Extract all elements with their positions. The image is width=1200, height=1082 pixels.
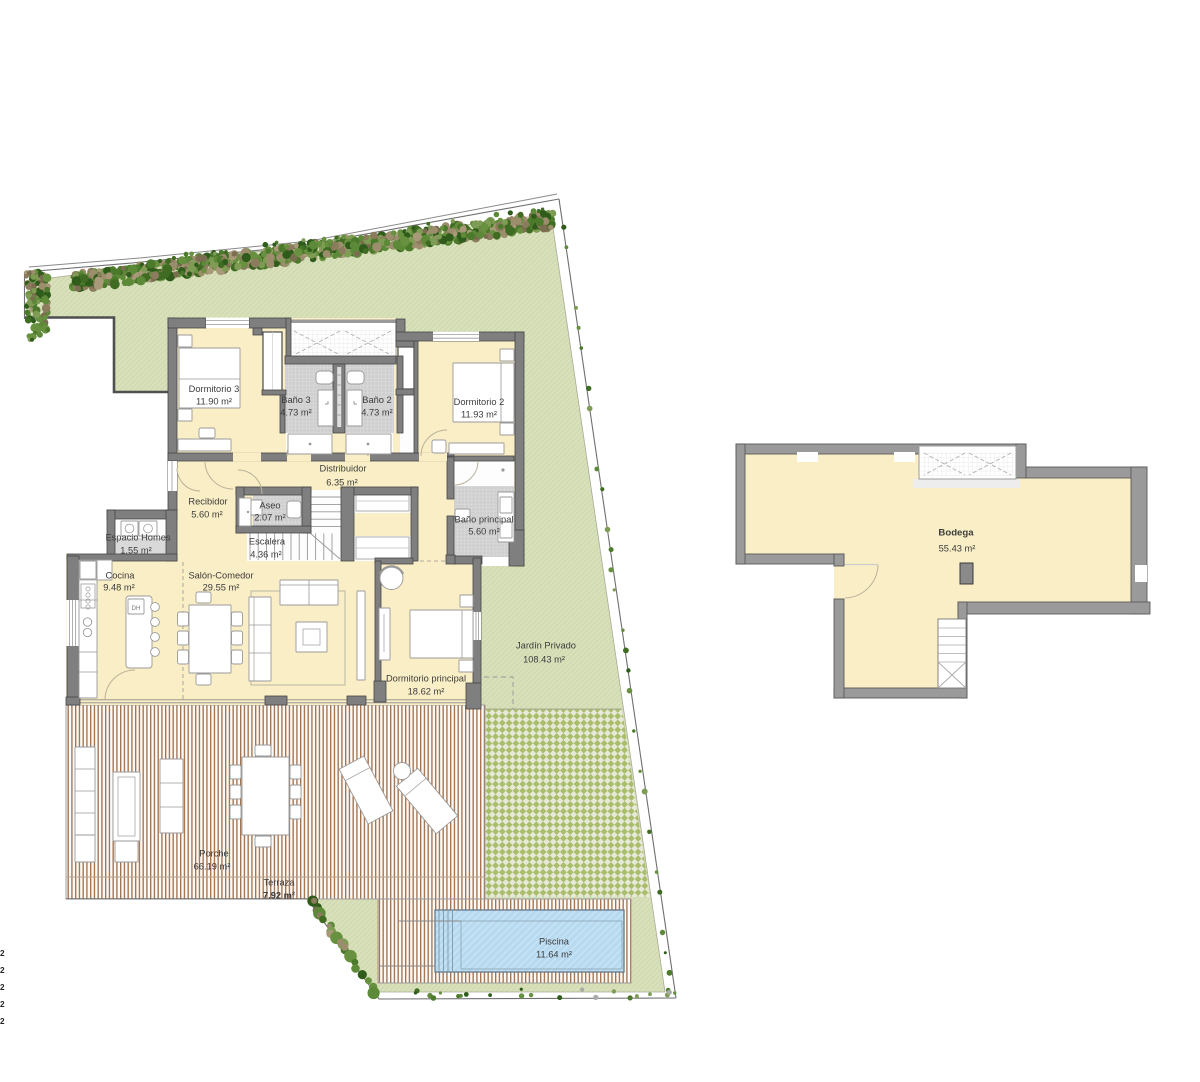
svg-text:2: 2 xyxy=(0,1000,5,1009)
svg-text:Recibidor: Recibidor xyxy=(188,497,227,507)
svg-text:66.19 m²: 66.19 m² xyxy=(194,862,231,872)
svg-text:Porche: Porche xyxy=(199,849,228,859)
svg-text:18.62 m²: 18.62 m² xyxy=(408,687,445,697)
svg-text:4.36 m²: 4.36 m² xyxy=(250,550,282,560)
svg-text:4.73 m²: 4.73 m² xyxy=(361,408,393,418)
svg-text:2: 2 xyxy=(0,966,5,975)
svg-text:Escalera: Escalera xyxy=(249,537,286,547)
svg-text:5.60 m²: 5.60 m² xyxy=(191,510,223,520)
svg-text:4.73 m²: 4.73 m² xyxy=(280,408,312,418)
svg-text:Cocina: Cocina xyxy=(106,571,136,581)
svg-text:2.07 m²: 2.07 m² xyxy=(254,513,286,523)
svg-text:7.92 m²: 7.92 m² xyxy=(263,891,295,901)
svg-text:Terraza: Terraza xyxy=(264,878,296,888)
svg-text:55.43 m²: 55.43 m² xyxy=(939,544,976,554)
svg-text:Baño 3: Baño 3 xyxy=(281,395,310,405)
svg-text:Baño 2: Baño 2 xyxy=(362,395,391,405)
svg-text:Bodega: Bodega xyxy=(938,528,974,539)
svg-text:1.55 m²: 1.55 m² xyxy=(120,546,152,556)
svg-text:Dormitorio principal: Dormitorio principal xyxy=(386,674,466,684)
svg-text:Baño principal: Baño principal xyxy=(455,515,514,525)
svg-text:Dormitorio 3: Dormitorio 3 xyxy=(189,384,240,394)
svg-text:Salón-Comedor: Salón-Comedor xyxy=(188,571,253,581)
svg-text:Jardín Privado: Jardín Privado xyxy=(516,641,576,651)
svg-text:11.90 m²: 11.90 m² xyxy=(196,397,232,407)
svg-text:2: 2 xyxy=(0,983,5,992)
svg-text:2: 2 xyxy=(0,949,5,958)
svg-text:108.43 m²: 108.43 m² xyxy=(523,655,565,665)
svg-text:6.35 m²: 6.35 m² xyxy=(326,478,358,488)
svg-text:Aseo: Aseo xyxy=(259,501,280,511)
svg-text:5.60 m²: 5.60 m² xyxy=(468,527,500,537)
svg-text:2: 2 xyxy=(0,1017,5,1026)
svg-text:9.48 m²: 9.48 m² xyxy=(103,583,135,593)
svg-text:11.93 m²: 11.93 m² xyxy=(461,410,497,420)
svg-text:11.64 m²: 11.64 m² xyxy=(536,950,572,960)
svg-text:Dormitorio 2: Dormitorio 2 xyxy=(454,397,505,407)
svg-text:Espacio Homes: Espacio Homes xyxy=(105,533,170,543)
svg-text:Distribuidor: Distribuidor xyxy=(319,464,366,474)
svg-text:DH: DH xyxy=(132,606,141,612)
svg-text:Piscina: Piscina xyxy=(539,937,570,947)
svg-text:29.55 m²: 29.55 m² xyxy=(203,583,240,593)
